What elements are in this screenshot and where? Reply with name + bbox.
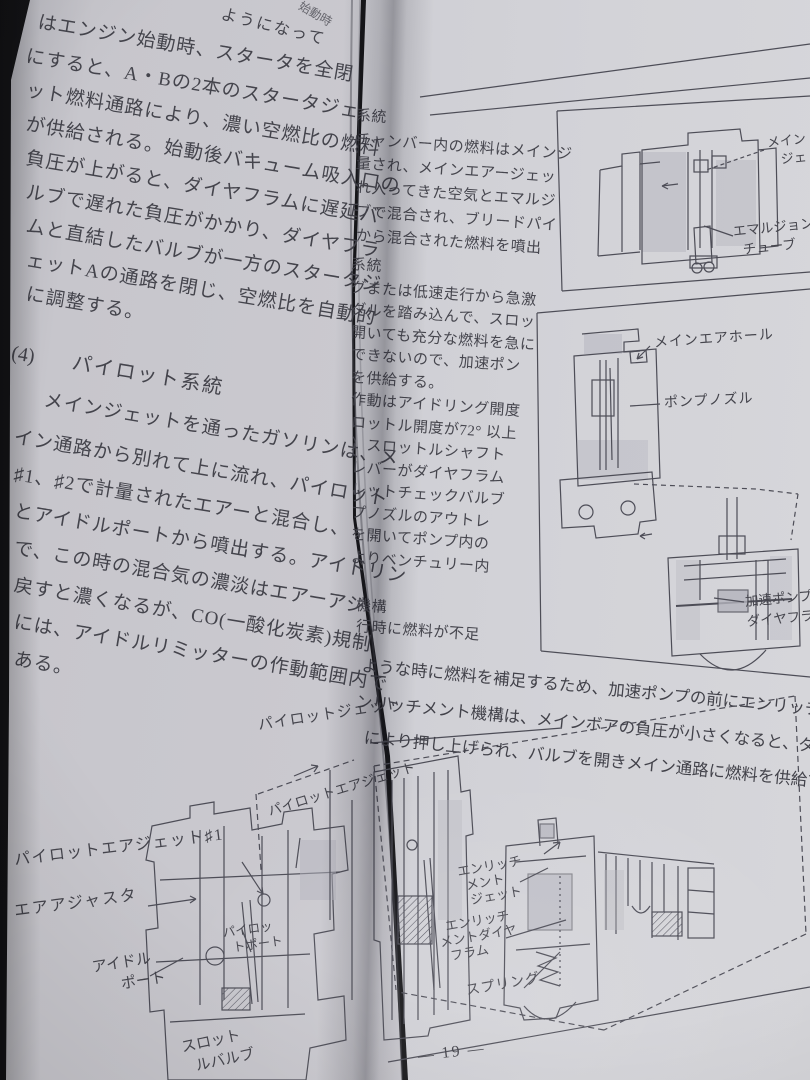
label-emulsion-tube: エマルジョン チューブ (732, 214, 810, 260)
label-pilot-port: パイロッ トポート (222, 917, 284, 957)
label-spring: スプリング (464, 967, 541, 1000)
label-idle-port: アイドル ポート (91, 947, 168, 1000)
right-column-enrichment: 機構 行時に燃料が不足 (356, 596, 480, 638)
label-main-jet: メイン ジェ (766, 130, 809, 170)
page-number: — 19 — (417, 1040, 487, 1066)
section-number: (4) (10, 342, 37, 368)
label-throttle-valve: スロット ルバルブ (180, 1024, 257, 1080)
label-line: ジェ (780, 148, 809, 169)
label-enrichment-diaphragm: エンリッチ メントダイヤ フラム (436, 907, 520, 965)
book-photo: ようになって 始動時 はエンジン始動時、スタータを全閉 にすると、A・Bの2本の… (0, 0, 810, 1080)
label-pilot-air-jet-1: パイロットエアジェット♯1 (13, 820, 225, 870)
right-column-accel-pump: 系統 グまたは低速走行から急激 ダルを踏み込んで、スロッ 開いても充分な燃料を急… (351, 254, 537, 569)
label-pump-nozzle: ポンプノズル (663, 387, 754, 412)
label-air-adjuster: エアアジャスタ (12, 881, 139, 921)
label-pilot-air-jet-2: パイロットエアジェット (265, 756, 418, 820)
left-paragraph-starter-system: はエンジン始動時、スタータを全閉 にすると、A・Bの2本のスタータジェ ット燃料… (26, 6, 405, 312)
label-enrichment-jet: エンリッチ メント ジェット (456, 853, 528, 909)
printed-text-layer: ようになって 始動時 はエンジン始動時、スタータを全閉 にすると、A・Bの2本の… (0, 0, 810, 1080)
label-main-air-hole: メインエアホール (653, 324, 774, 352)
right-column-main-system: 系統 チャンバー内の燃料はメインジ 量され、メインエアージェッ れ入ってきた空気… (356, 104, 573, 248)
label-accel-pump-diaphragm: 加速ポンプ ダイヤフラ (744, 586, 810, 632)
